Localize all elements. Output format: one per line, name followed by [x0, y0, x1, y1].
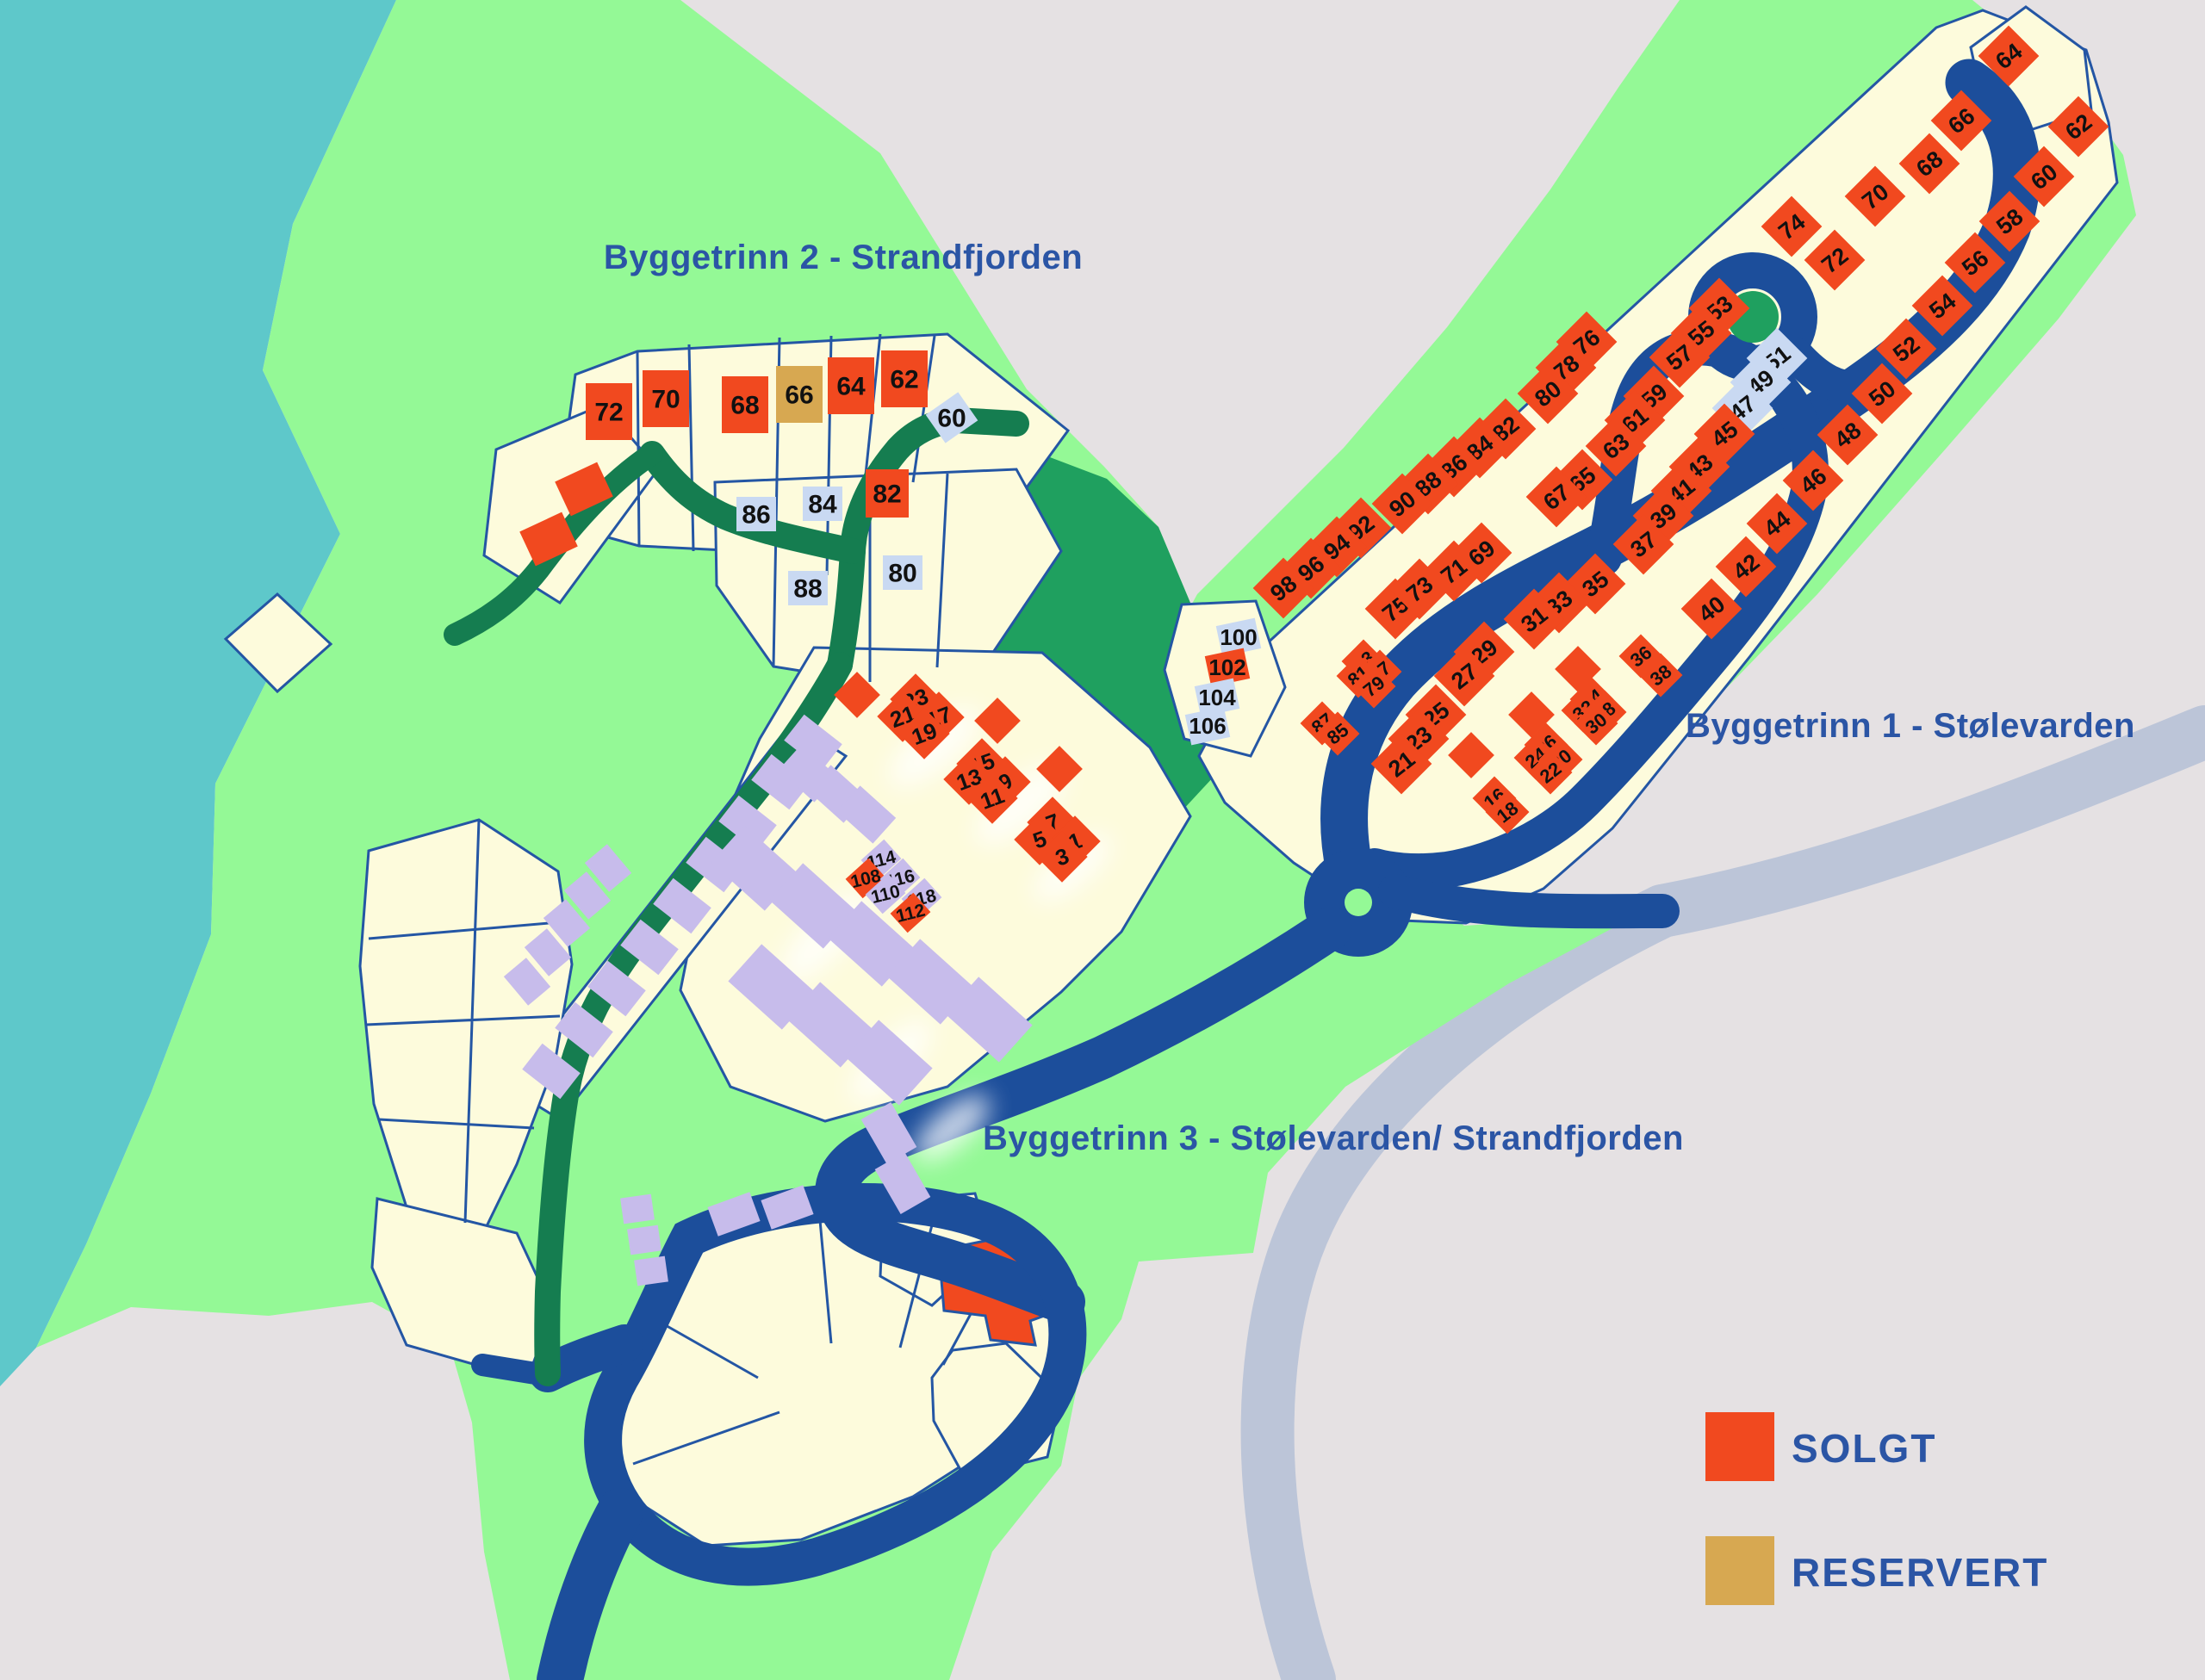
- plot-number-104: 104: [1198, 685, 1236, 710]
- plot-number-82: 82: [873, 480, 901, 509]
- plot-number-84: 84: [808, 491, 837, 519]
- plot-number-106: 106: [1189, 713, 1226, 739]
- legend-reservert-label: RESERVERT: [1792, 1550, 2048, 1595]
- plot-number-62: 62: [890, 366, 918, 394]
- plot-number-72: 72: [594, 399, 623, 427]
- plot-rowhouses[interactable]: [627, 1225, 661, 1255]
- plot-rowhouses[interactable]: [620, 1194, 655, 1224]
- site-plan-map: 6466626860705874725654525048464442405355…: [0, 0, 2205, 1680]
- legend-solgt-label: SOLGT: [1792, 1426, 1936, 1471]
- plot-rowhouses[interactable]: [634, 1256, 668, 1286]
- label-byggetrinn3: Byggetrinn 3 - Stølevarden/ Strandfjorde…: [983, 1119, 1684, 1157]
- label-byggetrinn1: Byggetrinn 1 - Stølevarden: [1686, 707, 2135, 745]
- site-plan-svg: 6466626860705874725654525048464442405355…: [0, 0, 2205, 1680]
- legend-solgt-swatch: [1705, 1412, 1774, 1481]
- plot-number-68: 68: [730, 392, 759, 420]
- plot-number-102: 102: [1208, 654, 1245, 680]
- plot-number-100: 100: [1220, 624, 1257, 650]
- plot-number-86: 86: [742, 501, 770, 530]
- plot-number-88: 88: [793, 575, 822, 604]
- roundabout-island: [1345, 889, 1372, 916]
- road-junction-east: [1395, 891, 1662, 911]
- plot-number-70: 70: [651, 386, 680, 414]
- plot-number-80: 80: [888, 560, 916, 588]
- plot-number-64: 64: [836, 373, 866, 401]
- plot-number-66: 66: [785, 381, 813, 410]
- legend-reservert-swatch: [1705, 1536, 1774, 1605]
- label-byggetrinn2: Byggetrinn 2 - Strandfjorden: [604, 239, 1083, 276]
- plot-number-60: 60: [937, 405, 966, 433]
